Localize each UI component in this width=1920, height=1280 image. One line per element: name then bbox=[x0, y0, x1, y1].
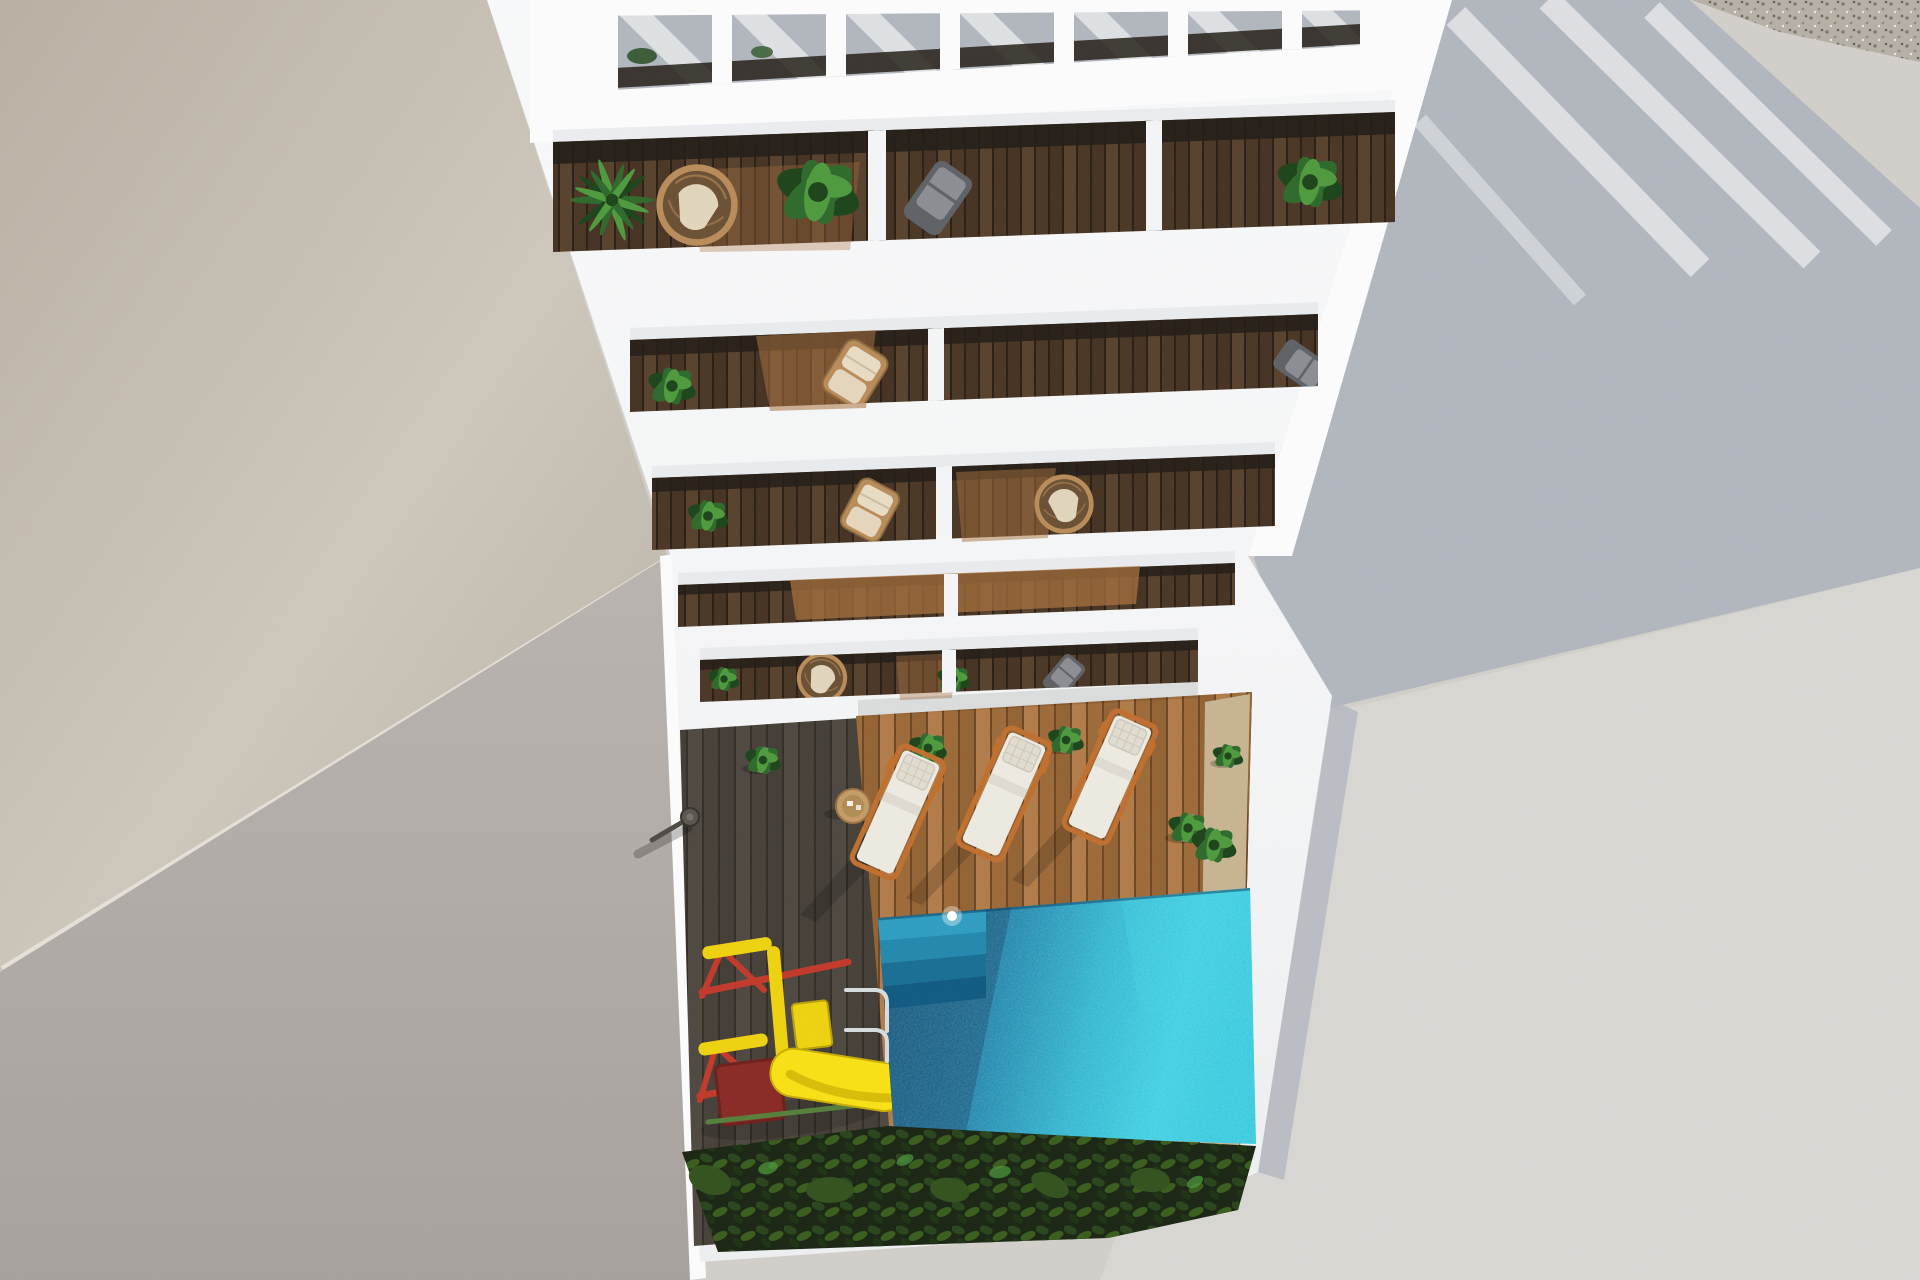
render-canvas: Aerial 3D architectural render: white ap… bbox=[0, 0, 1920, 1280]
film-grain-overlay bbox=[0, 0, 1920, 1280]
aerial-render: Aerial 3D architectural render: white ap… bbox=[0, 0, 1920, 1280]
